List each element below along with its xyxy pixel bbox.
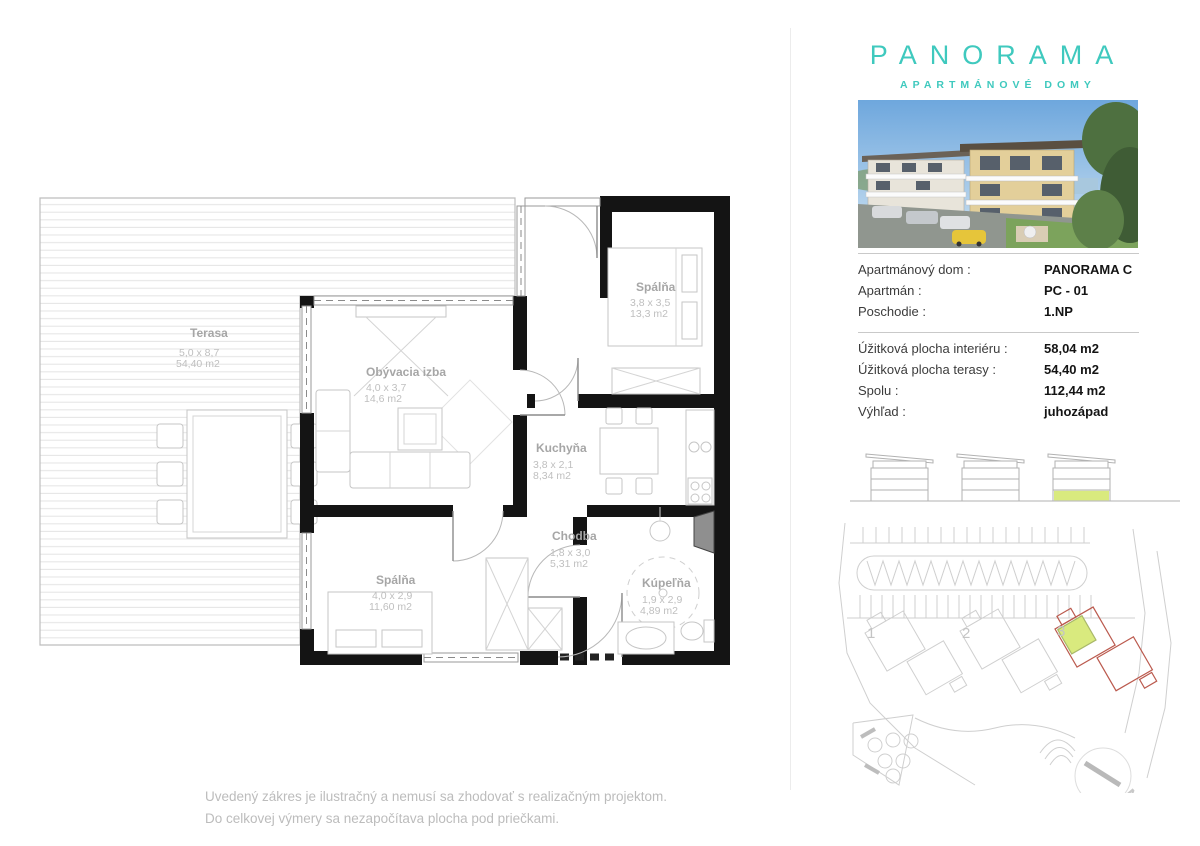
table-row: Apartmán : PC - 01 [858,280,1139,301]
brand-subtitle: APARTMÁNOVÉ DOMY [818,79,1178,91]
table-row: Poschodie : 1.NP [858,301,1139,322]
site-building-1 [860,592,968,716]
parking-strip [857,556,1087,590]
table-row: Výhľad : juhozápad [858,401,1139,422]
svg-text:54,40 m2: 54,40 m2 [176,358,220,370]
site-building-label-3: 3 [1057,623,1065,640]
compass: N [1075,748,1142,793]
row-label: Výhľad : [858,404,1044,419]
shaft [694,511,714,553]
svg-text:14,6 m2: 14,6 m2 [364,393,402,405]
row-label: Spolu : [858,383,1044,398]
row-value: 112,44 m2 [1044,383,1105,398]
highlighted-floor [1054,491,1109,501]
site-building-label-1: 1 [867,625,875,642]
disclaimer-line-1: Uvedený zákres je ilustračný a nemusí sa… [205,786,667,808]
room-label-kupelna: Kúpeľňa [642,576,691,590]
vertical-divider [790,28,791,790]
table-row: Úžitková plocha terasy : 54,40 m2 [858,359,1139,380]
row-value: 58,04 m2 [1044,341,1099,356]
terrace [40,198,515,645]
row-label: Apartmánový dom : [858,262,1044,277]
building-render-image [858,100,1138,248]
elevation-building-2 [957,454,1024,501]
site-building-3-highlighted [1050,588,1158,712]
svg-text:4,89 m2: 4,89 m2 [640,605,678,617]
table-row: Spolu : 112,44 m2 [858,380,1139,401]
svg-text:13,3 m2: 13,3 m2 [630,308,668,320]
disclaimer-line-2: Do celkovej výmery sa nezapočítava ploch… [205,808,667,830]
parking-row-bottom [860,595,1091,618]
room-label-chodba: Chodba [552,529,597,543]
room-label-kuchyna: Kuchyňa [536,441,587,455]
room-label-spalna-2: Spálňa [376,573,416,587]
svg-text:5,31 m2: 5,31 m2 [550,558,588,570]
site-building-label-2: 2 [962,625,970,642]
row-value: 54,40 m2 [1044,362,1099,377]
elevation-building-3-highlighted [1048,454,1115,501]
page: Terasa 5,0 x 8,7 54,40 m2 Obývacia izba … [0,0,1200,846]
building-elevations [850,448,1180,506]
area-info-table: Úžitková plocha interiéru : 58,04 m2 Úži… [858,332,1139,422]
table-row: Apartmánový dom : PANORAMA C [858,259,1139,280]
brand-title: PANORAMA [818,40,1178,71]
disclaimer: Uvedený zákres je ilustračný a nemusí sa… [205,786,667,830]
svg-text:11,60 m2: 11,60 m2 [369,601,412,613]
room-label-obyvacia: Obývacia izba [366,365,446,379]
compass-north-label: N [1120,785,1142,793]
unit-info-table: Apartmánový dom : PANORAMA C Apartmán : … [858,253,1139,322]
row-value: PANORAMA C [1044,262,1132,277]
playground [853,715,918,785]
row-value: 1.NP [1044,304,1073,319]
parking-row-top [850,527,1090,543]
room-label-spalna-1: Spálňa [636,280,676,294]
table-row: Úžitková plocha interiéru : 58,04 m2 [858,338,1139,359]
site-plan: 1 2 3 N [835,523,1185,793]
room-label-terasa: Terasa [190,326,228,340]
row-label: Apartmán : [858,283,1044,298]
row-label: Úžitková plocha interiéru : [858,341,1044,356]
row-value: juhozápad [1044,404,1108,419]
svg-text:8,34 m2: 8,34 m2 [533,470,571,482]
row-label: Poschodie : [858,304,1044,319]
elevation-building-1 [866,454,933,501]
floorplan-drawing: Terasa 5,0 x 8,7 54,40 m2 Obývacia izba … [0,0,790,846]
row-label: Úžitková plocha terasy : [858,362,1044,377]
brand-logo: PANORAMA APARTMÁNOVÉ DOMY [818,40,1178,91]
row-value: PC - 01 [1044,283,1088,298]
